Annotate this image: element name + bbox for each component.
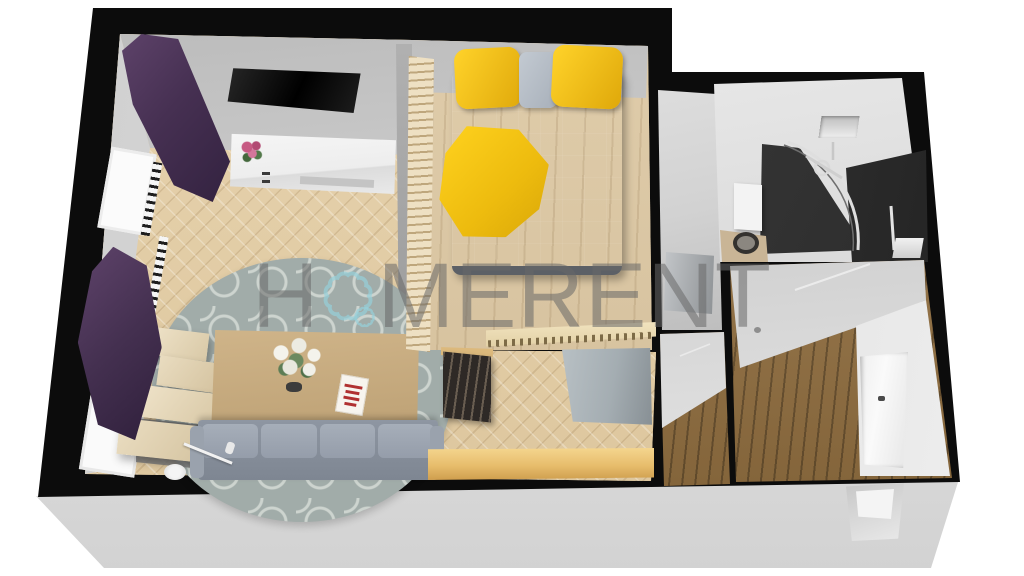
chrome-tap (891, 206, 894, 250)
watermark: H MERENT (252, 238, 772, 354)
shower-glass-arc (788, 142, 858, 250)
watermark-suffix: MERENT (378, 244, 772, 349)
entrance-wall-highlight (795, 264, 870, 290)
watermark-flower-logo-icon (315, 238, 381, 354)
watermark-prefix: H (252, 244, 319, 349)
floorplan-scene: H MERENT (0, 0, 1024, 576)
